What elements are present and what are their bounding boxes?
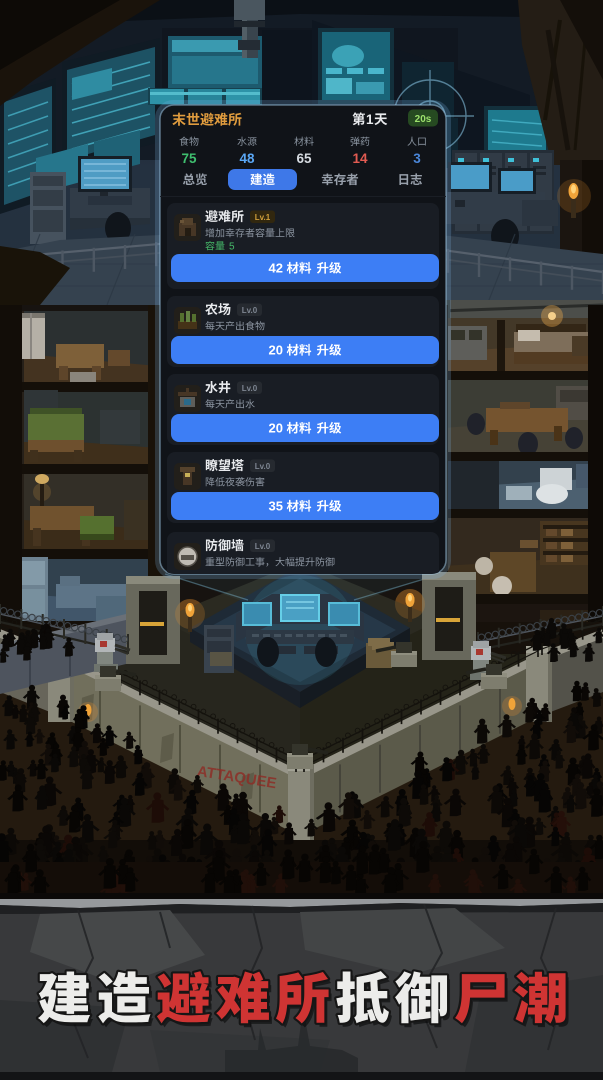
svg-text:Lv.0: Lv.0 [255, 542, 271, 551]
svg-text:20s: 20s [415, 114, 432, 125]
svg-text:20: 20 [269, 343, 283, 358]
svg-text:42: 42 [269, 261, 283, 276]
svg-text:48: 48 [239, 151, 255, 166]
svg-text:Lv.0: Lv.0 [255, 462, 271, 471]
svg-text:Lv.0: Lv.0 [242, 306, 258, 315]
svg-text:14: 14 [352, 151, 368, 166]
svg-text:Lv.0: Lv.0 [242, 384, 258, 393]
svg-text:5: 5 [229, 242, 235, 253]
svg-text:1: 1 [366, 112, 374, 127]
svg-text:75: 75 [181, 151, 197, 166]
svg-text:65: 65 [296, 151, 312, 166]
svg-text:Lv.1: Lv.1 [255, 213, 271, 222]
svg-text:3: 3 [413, 151, 421, 166]
svg-text:20: 20 [269, 421, 283, 436]
svg-text:35: 35 [269, 499, 283, 514]
